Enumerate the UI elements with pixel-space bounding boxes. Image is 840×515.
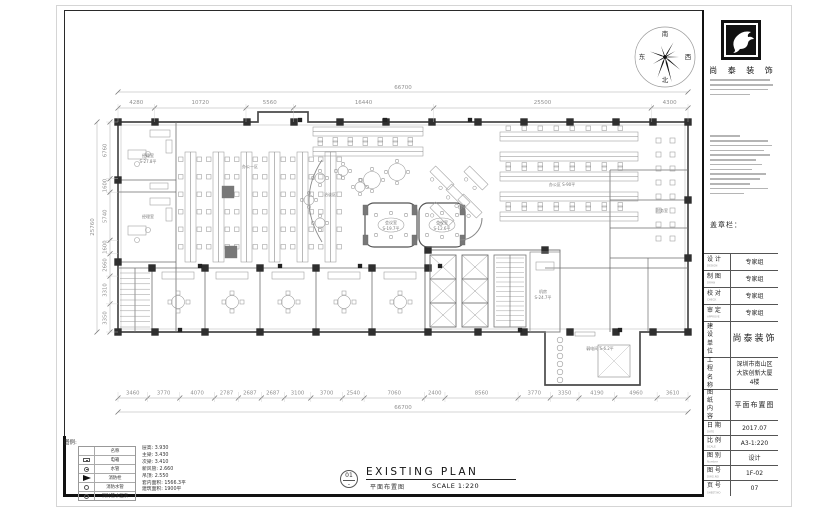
svg-text:25500: 25500 (534, 100, 552, 106)
legend-header-row: 名称 (79, 447, 135, 455)
svg-text:3460: 3460 (126, 391, 140, 397)
room-label: 洽谈区 (324, 191, 336, 197)
drawing-title-text: EXISTING PLAN (366, 466, 516, 480)
row-label: 图 纸 内 容 (704, 390, 731, 420)
row-label: 页 号SHEET.NO (704, 481, 731, 496)
legend-item: 消防水管 (79, 482, 135, 491)
panel-icon (79, 456, 95, 464)
svg-text:8560: 8560 (475, 391, 489, 397)
svg-text:3700: 3700 (320, 391, 334, 397)
row-value: 07 (731, 481, 778, 496)
svg-text:3350: 3350 (558, 391, 572, 397)
room-label: 机房 (539, 288, 547, 294)
row-value: 平面布置图 (731, 390, 778, 420)
notes-lines (704, 132, 778, 194)
legend-spec-line: 次梁: 3.410 (142, 460, 222, 467)
compass: 西北东南 (635, 27, 695, 87)
circle-dot-icon (79, 465, 95, 473)
room-label: 会议室 (385, 219, 397, 225)
circle-icon (79, 483, 95, 491)
row-label: 制 图DRAW (704, 271, 731, 287)
title-block-row: 比 例SCALEA3-1:220 (704, 435, 778, 450)
legend-spec-line: 新风管: 2.660 (142, 467, 222, 474)
row-label: 设 计DESIGN (704, 254, 731, 270)
title-block: 尚 泰 装 饰 盖章栏： 设 计DESIGN专家组制 图DRAW专家组校 对CH… (702, 10, 776, 497)
legend-table: 名称电箱水管消防栓消防水管消防管水压表 (78, 446, 136, 501)
legend-item: 水管 (79, 464, 135, 473)
title-block-row: 日 期DATE2017.07 (704, 420, 778, 435)
svg-text:16440: 16440 (355, 100, 373, 106)
svg-text:2400: 2400 (428, 391, 442, 397)
row-value: 1F-02 (731, 466, 778, 480)
title-block-row: 建 设 单 位尚泰装饰 (704, 321, 778, 357)
title-block-row: 审 定APPROVE专家组 (704, 304, 778, 321)
svg-text:6760: 6760 (103, 143, 109, 157)
stamp-label: 盖章栏： (710, 220, 742, 230)
row-value: 专家组 (731, 288, 778, 304)
svg-text:2687: 2687 (243, 391, 256, 397)
room-label: 会议室 (436, 219, 448, 225)
row-label: 审 定APPROVE (704, 305, 731, 321)
compass-left: 东 (639, 52, 646, 61)
legend-title: 图例: (64, 438, 77, 446)
detail-dash: - (341, 481, 357, 488)
row-value: 2017.07 (731, 421, 778, 435)
row-label: 比 例SCALE (704, 436, 731, 450)
title-block-row: 制 图DRAW专家组 (704, 270, 778, 287)
company-logo: 尚 泰 装 饰 (704, 20, 778, 95)
legend-spec-line: 建筑面积: 1900平 (142, 487, 222, 494)
detail-marker: 01 - (340, 470, 358, 488)
title-block-row: 图 号DWG.NO1F-02 (704, 465, 778, 480)
room-label: S-12.6平 (434, 226, 451, 231)
room-label: 办公一区 (242, 163, 258, 169)
row-value: 设计 (731, 451, 778, 465)
row-label: 建 设 单 位 (704, 322, 731, 357)
svg-text:66700: 66700 (394, 85, 412, 91)
svg-text:1600: 1600 (103, 240, 109, 254)
row-label: 日 期DATE (704, 421, 731, 435)
detail-number: 01 (343, 472, 355, 481)
row-value: 深圳市南山区 大族创新大厦 4楼 (731, 358, 778, 389)
room-label: 经理室 (142, 152, 154, 158)
svg-text:4300: 4300 (663, 100, 677, 106)
svg-text:3610: 3610 (666, 391, 680, 397)
svg-text:10720: 10720 (192, 100, 210, 106)
room-label: 财务室 (656, 207, 668, 213)
svg-text:1600: 1600 (103, 178, 109, 192)
legend-item: 消防管水压表 (79, 491, 135, 500)
legend-spec-line: 主梁: 3.430 (142, 453, 222, 460)
svg-text:3770: 3770 (527, 391, 541, 397)
circle-icon (79, 492, 95, 500)
hydrant-icon (79, 474, 95, 482)
title-block-row: 工 程 名 称深圳市南山区 大族创新大厦 4楼 (704, 357, 778, 389)
svg-text:25760: 25760 (90, 218, 96, 236)
drawing-title: 01 - EXISTING PLAN 平面布置图 SCALE 1:220 (340, 466, 540, 498)
svg-text:2687: 2687 (266, 391, 279, 397)
title-block-row: 设 计DESIGN专家组 (704, 253, 778, 270)
drawing-scale: SCALE 1:220 (432, 482, 479, 490)
svg-text:3310: 3310 (103, 283, 109, 297)
drawing-subtitle: 平面布置图 (370, 482, 405, 491)
row-value: 专家组 (731, 271, 778, 287)
legend-spec-line: 层高: 3.930 (142, 446, 222, 453)
room-label: 办公区 S-90平 (549, 181, 575, 187)
title-block-rows: 设 计DESIGN专家组制 图DRAW专家组校 对CHECK专家组审 定APPR… (704, 253, 778, 497)
svg-text:4280: 4280 (129, 100, 143, 106)
svg-text:7060: 7060 (388, 391, 402, 397)
company-info-lines (704, 79, 778, 95)
legend-spec-line: 吊顶: 2.550 (142, 474, 222, 481)
compass-bottom: 北 (662, 76, 669, 84)
legend-item: 消防栓 (79, 473, 135, 482)
row-label: 工 程 名 称 (704, 358, 731, 389)
compass-right: 西 (685, 53, 692, 61)
svg-text:3350: 3350 (103, 311, 109, 325)
room-label: 弱电间 S-6.2平 (586, 345, 614, 351)
svg-text:3100: 3100 (291, 391, 305, 397)
svg-text:2660: 2660 (103, 258, 109, 272)
room-label: 经理室 (142, 213, 154, 219)
title-block-row: 校 对CHECK专家组 (704, 287, 778, 304)
legend-item: 电箱 (79, 455, 135, 464)
row-value: 专家组 (731, 254, 778, 270)
row-label: 图 别Number (704, 451, 731, 465)
compass-top: 南 (662, 29, 669, 38)
svg-text:5740: 5740 (103, 209, 109, 223)
title-block-row: 图 纸 内 容平面布置图 (704, 389, 778, 420)
svg-text:66700: 66700 (394, 405, 412, 411)
row-label: 图 号DWG.NO (704, 466, 731, 480)
svg-text:2787: 2787 (220, 391, 233, 397)
title-block-row: 页 号SHEET.NO07 (704, 480, 778, 496)
svg-text:3770: 3770 (157, 391, 171, 397)
logo-bird-icon (721, 20, 761, 60)
row-value: 专家组 (731, 305, 778, 321)
row-value: A3-1:220 (731, 436, 778, 450)
svg-text:4960: 4960 (629, 391, 643, 397)
title-block-row: 图 别Number设计 (704, 450, 778, 465)
legend: 图例: 名称电箱水管消防栓消防水管消防管水压表 层高: 3.930主梁: 3.4… (62, 438, 222, 498)
room-label: S-24.7平 (535, 295, 552, 300)
company-name: 尚 泰 装 饰 (704, 65, 778, 76)
room-label: S-19.7平 (383, 226, 400, 231)
legend-specs: 层高: 3.930主梁: 3.430次梁: 3.410新风管: 2.660吊顶:… (142, 446, 222, 494)
svg-text:4070: 4070 (190, 391, 204, 397)
row-value: 尚泰装饰 (731, 322, 778, 357)
room-label: S-27.8平 (140, 159, 157, 164)
svg-text:2540: 2540 (347, 391, 361, 397)
row-label: 校 对CHECK (704, 288, 731, 304)
svg-text:5560: 5560 (263, 100, 277, 106)
svg-text:4190: 4190 (590, 391, 604, 397)
